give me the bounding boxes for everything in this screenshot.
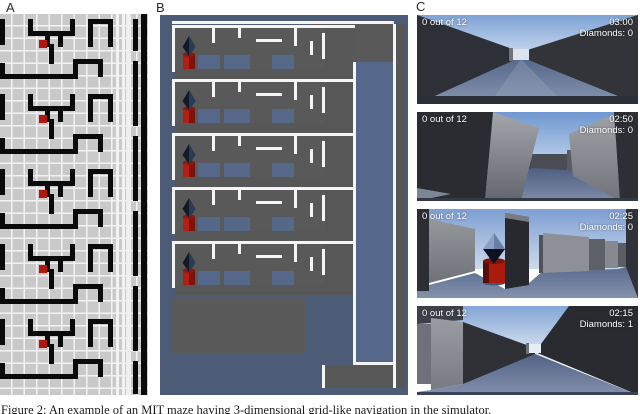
hud-overlay: 0 out of 12 03:00 Diamonds: 0 (417, 15, 638, 104)
diamond-counter: Diamonds: 0 (580, 28, 633, 39)
panel-b-label: B (156, 1, 165, 14)
outline (172, 21, 394, 24)
progress-counter: 0 out of 12 (422, 114, 467, 125)
bottom-right-room (325, 365, 356, 388)
timer: 02:25 (609, 211, 633, 222)
diamond-counter: Diamonds: 0 (580, 222, 633, 233)
timer: 03:00 (609, 17, 633, 28)
fpv-frame-4: 0 out of 12 02:15 Diamonds: 1 (417, 306, 638, 395)
panel-c-label: C (416, 0, 425, 13)
fpv-frame-3: 0 out of 12 02:25 Diamonds: 0 (417, 209, 638, 298)
progress-counter: 0 out of 12 (422, 308, 467, 319)
panel-a-label: A (6, 1, 15, 14)
timer: 02:15 (609, 308, 633, 319)
timer: 02:50 (609, 114, 633, 125)
right-corridor-floor (356, 62, 393, 362)
fpv-frame-2: 0 out of 12 02:50 Diamonds: 0 (417, 112, 638, 201)
bottom-right-room (356, 365, 393, 388)
figure-2: A B C (0, 0, 640, 414)
maze-right-wall (141, 14, 147, 395)
grid-band (126, 14, 131, 395)
outline (353, 62, 356, 365)
hud-overlay: 0 out of 12 02:15 Diamonds: 1 (417, 306, 638, 395)
outline (393, 24, 396, 388)
bottom-left-room (172, 297, 305, 353)
diamond-counter: Diamonds: 0 (580, 125, 633, 136)
progress-counter: 0 out of 12 (422, 211, 467, 222)
fpv-frame-1: 0 out of 12 03:00 Diamonds: 0 (417, 15, 638, 104)
progress-counter: 0 out of 12 (422, 17, 467, 28)
diamond-counter: Diamonds: 1 (580, 319, 633, 330)
figure-caption: Figure 2: An example of an MIT maze havi… (1, 403, 640, 414)
outline (353, 362, 396, 365)
hud-overlay: 0 out of 12 02:25 Diamonds: 0 (417, 209, 638, 298)
maze-render-3d-topdown (160, 15, 408, 395)
grid-band (116, 14, 119, 395)
outer-wall (396, 24, 406, 388)
maze-map-2d (0, 14, 148, 395)
hud-overlay: 0 out of 12 02:50 Diamonds: 0 (417, 112, 638, 201)
grid-band (122, 14, 124, 395)
outline (322, 365, 325, 388)
